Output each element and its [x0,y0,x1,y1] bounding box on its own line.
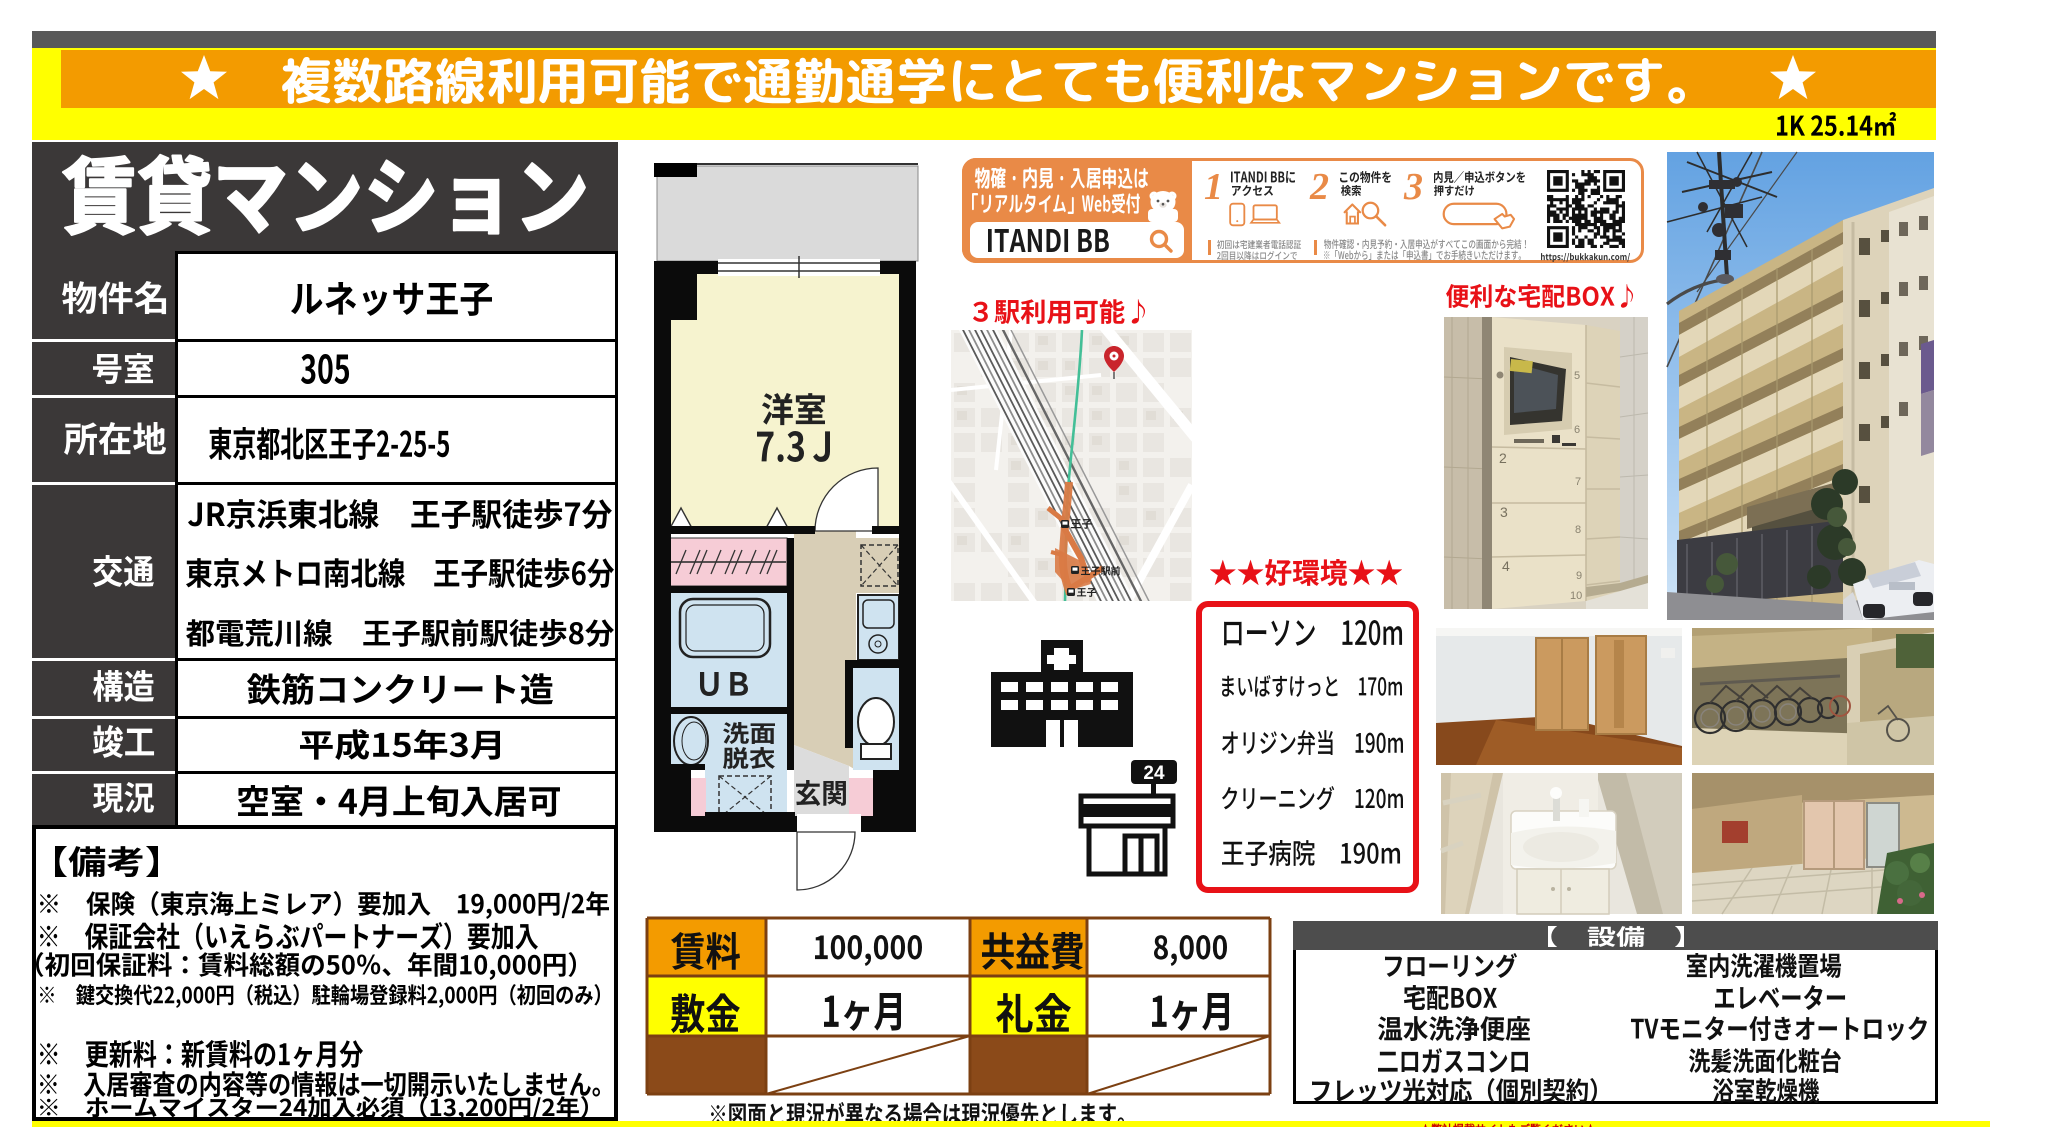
svg-text:8: 8 [1575,524,1581,536]
svg-text:5: 5 [1574,370,1580,382]
svg-text:4: 4 [1502,558,1510,574]
svg-text:9: 9 [1576,570,1582,582]
svg-text:7: 7 [1575,476,1581,488]
svg-text:3: 3 [1500,504,1508,520]
svg-text:2: 2 [1499,450,1507,466]
svg-text:10: 10 [1570,590,1582,602]
svg-text:6: 6 [1574,424,1580,436]
svg-text:24: 24 [1143,763,1165,784]
